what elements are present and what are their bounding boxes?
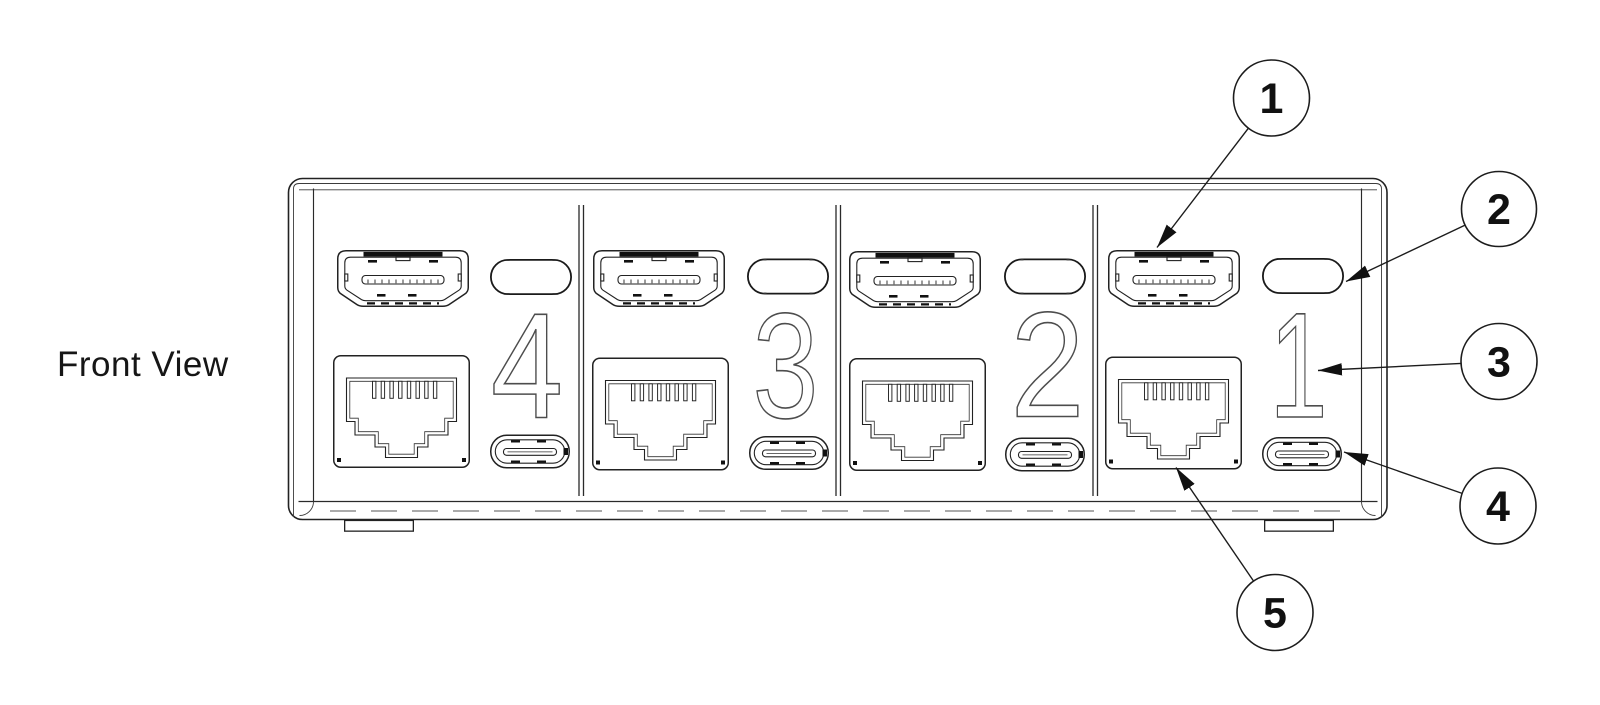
panel-section-3: 3 (593, 251, 829, 470)
hdmi-port-2 (850, 252, 981, 307)
panel-section-2: 2 (850, 252, 1085, 471)
ethernet-port-2 (850, 359, 986, 471)
panel-number-2: 2 (1011, 281, 1085, 449)
panel-number-4: 4 (491, 282, 563, 450)
ethernet-port-1 (1106, 357, 1242, 469)
callout-number-5: 5 (1263, 590, 1287, 638)
panel-number-3: 3 (753, 282, 819, 450)
panel-section-1: 1 (1106, 251, 1343, 471)
callout-number-1: 1 (1260, 75, 1284, 123)
diagram-canvas: Front View 4 (0, 0, 1600, 705)
hdmi-port-3 (594, 251, 725, 306)
hdmi-port-4 (338, 251, 469, 306)
view-label: Front View (57, 345, 229, 384)
callout-number-2: 2 (1487, 186, 1511, 234)
front-view-diagram: Front View 4 (0, 0, 1600, 705)
device-foot-right (1265, 520, 1334, 531)
ethernet-port-3 (593, 358, 729, 470)
hdmi-port-1 (1109, 251, 1240, 306)
panel-number-1: 1 (1270, 281, 1328, 449)
device-front-panel: 4 3 2 1 (289, 179, 1388, 532)
ethernet-port-4 (334, 356, 470, 468)
callout-number-3: 3 (1487, 339, 1511, 387)
panel-section-4: 4 (334, 251, 571, 468)
callout-number-4: 4 (1486, 483, 1510, 531)
device-foot-left (345, 520, 414, 531)
